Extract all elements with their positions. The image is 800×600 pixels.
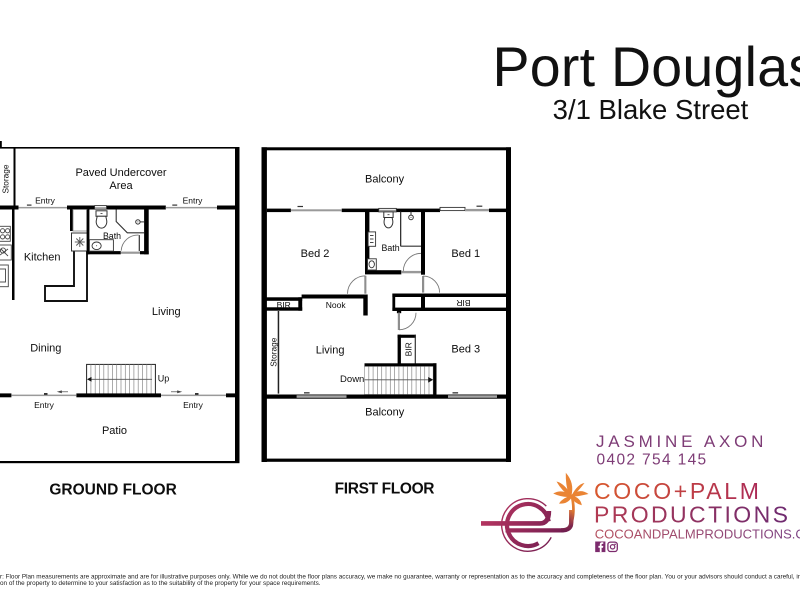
svg-text:Bath: Bath [382, 243, 400, 253]
svg-text:GROUND FLOOR: GROUND FLOOR [49, 482, 176, 499]
svg-text:JASMINE AXON: JASMINE AXON [596, 432, 767, 451]
svg-text:Storage: Storage [268, 337, 278, 366]
svg-text:Storage: Storage [1, 164, 11, 193]
svg-text:Area: Area [109, 180, 133, 192]
svg-text:Paved Undercover: Paved Undercover [75, 167, 166, 179]
svg-text:on of the property to determin: on of the property to determine to your … [0, 580, 321, 587]
svg-text:0402 754 145: 0402 754 145 [597, 452, 708, 469]
svg-text:Balcony: Balcony [365, 407, 405, 419]
svg-text:Bath: Bath [103, 231, 121, 241]
svg-text:Entry: Entry [35, 195, 56, 205]
svg-text:Bed 1: Bed 1 [451, 248, 480, 260]
svg-text:Living: Living [152, 306, 181, 318]
svg-text:BIR: BIR [456, 298, 470, 308]
svg-text:Balcony: Balcony [365, 173, 405, 185]
svg-text:Entry: Entry [183, 400, 204, 410]
svg-text:COCOANDPALMPRODUCTIONS.COM: COCOANDPALMPRODUCTIONS.COM [595, 527, 800, 542]
svg-text:Kitchen: Kitchen [24, 252, 61, 264]
svg-text:Patio: Patio [102, 425, 127, 437]
svg-text:Port Douglas: Port Douglas [493, 36, 800, 98]
svg-text:Bed 2: Bed 2 [301, 248, 330, 260]
svg-text:BIR: BIR [404, 342, 414, 356]
svg-text:Bed 3: Bed 3 [451, 343, 480, 355]
svg-text:Down: Down [340, 374, 364, 385]
svg-text:BIR: BIR [277, 300, 291, 310]
svg-text:Up: Up [158, 373, 170, 383]
svg-text:Entry: Entry [183, 195, 204, 205]
svg-text:Living: Living [316, 344, 345, 356]
svg-text:COCO+PALM: COCO+PALM [594, 478, 762, 504]
svg-text:Dining: Dining [30, 343, 61, 355]
svg-text:Entry: Entry [34, 400, 55, 410]
svg-text:FIRST FLOOR: FIRST FLOOR [335, 481, 435, 498]
svg-text:3/1 Blake Street: 3/1 Blake Street [553, 94, 749, 125]
svg-text:Nook: Nook [326, 300, 347, 310]
svg-text:PRODUCTIONS: PRODUCTIONS [594, 501, 790, 527]
